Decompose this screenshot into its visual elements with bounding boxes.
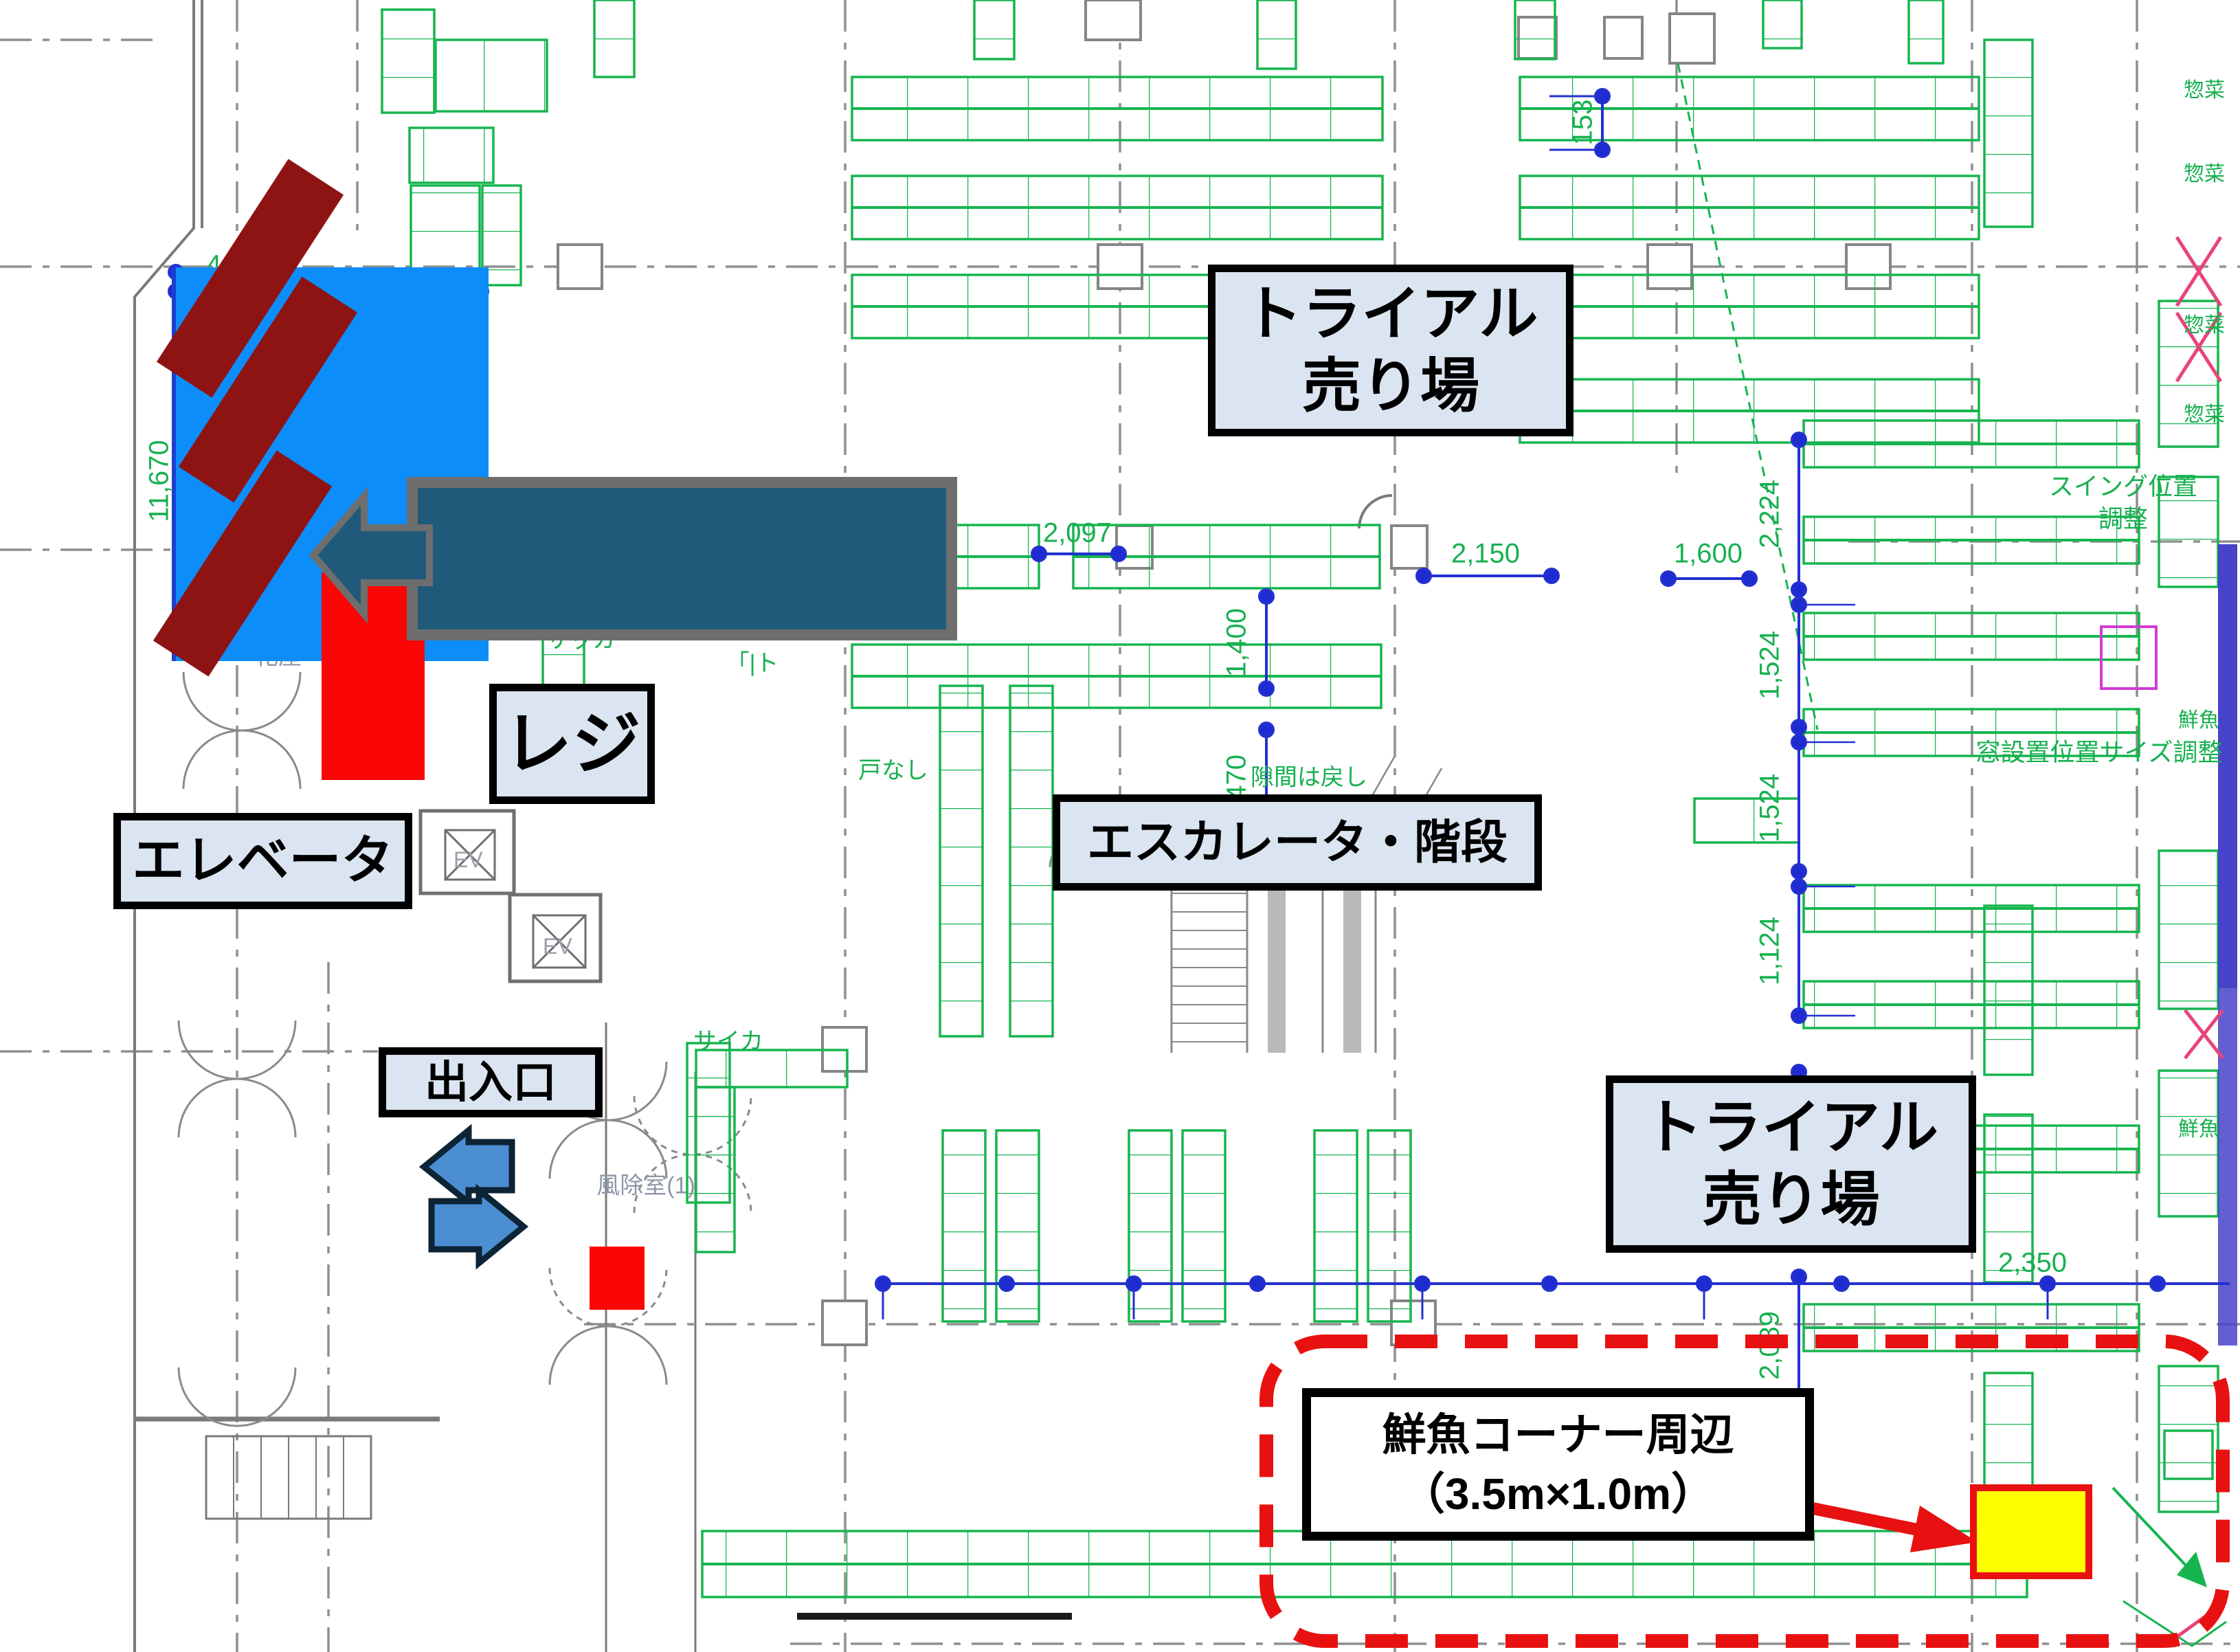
fresh-fish-arrowhead	[1910, 1506, 1978, 1552]
entrance-arrow-out	[432, 1190, 524, 1263]
fresh-fish-yellow-marker	[1973, 1488, 2089, 1576]
callout-line: 売り場	[1703, 1164, 1880, 1236]
callout-trial-area-bottom: トライアル 売り場	[1606, 1075, 1976, 1253]
callout-line: 鮮魚コーナー周辺	[1382, 1405, 1734, 1464]
callout-fresh-fish: 鮮魚コーナー周辺 （3.5m×1.0m）	[1302, 1388, 1814, 1541]
callout-line: エスカレータ・階段	[1087, 814, 1508, 871]
callout-line: トライアル	[1243, 278, 1538, 350]
callout-line: 出入口	[425, 1056, 557, 1109]
callout-line: トライアル	[1644, 1092, 1938, 1164]
callout-escalator-stairs: エスカレータ・階段	[1053, 794, 1542, 891]
callout-line: （3.5m×1.0m）	[1401, 1464, 1715, 1523]
callout-line: レジ	[504, 702, 641, 786]
callout-entrance: 出入口	[379, 1047, 603, 1117]
callout-elevator: エレベータ	[113, 813, 412, 909]
callout-register: レジ	[489, 684, 655, 804]
entrance-arrow-in	[424, 1130, 512, 1203]
callout-line: 売り場	[1302, 350, 1479, 423]
floorplan-page: EV EV	[0, 0, 2240, 1652]
callout-trial-area-top: トライアル 売り場	[1208, 265, 1573, 436]
teal-callout-box	[412, 482, 952, 635]
callout-line: エレベータ	[133, 829, 394, 893]
